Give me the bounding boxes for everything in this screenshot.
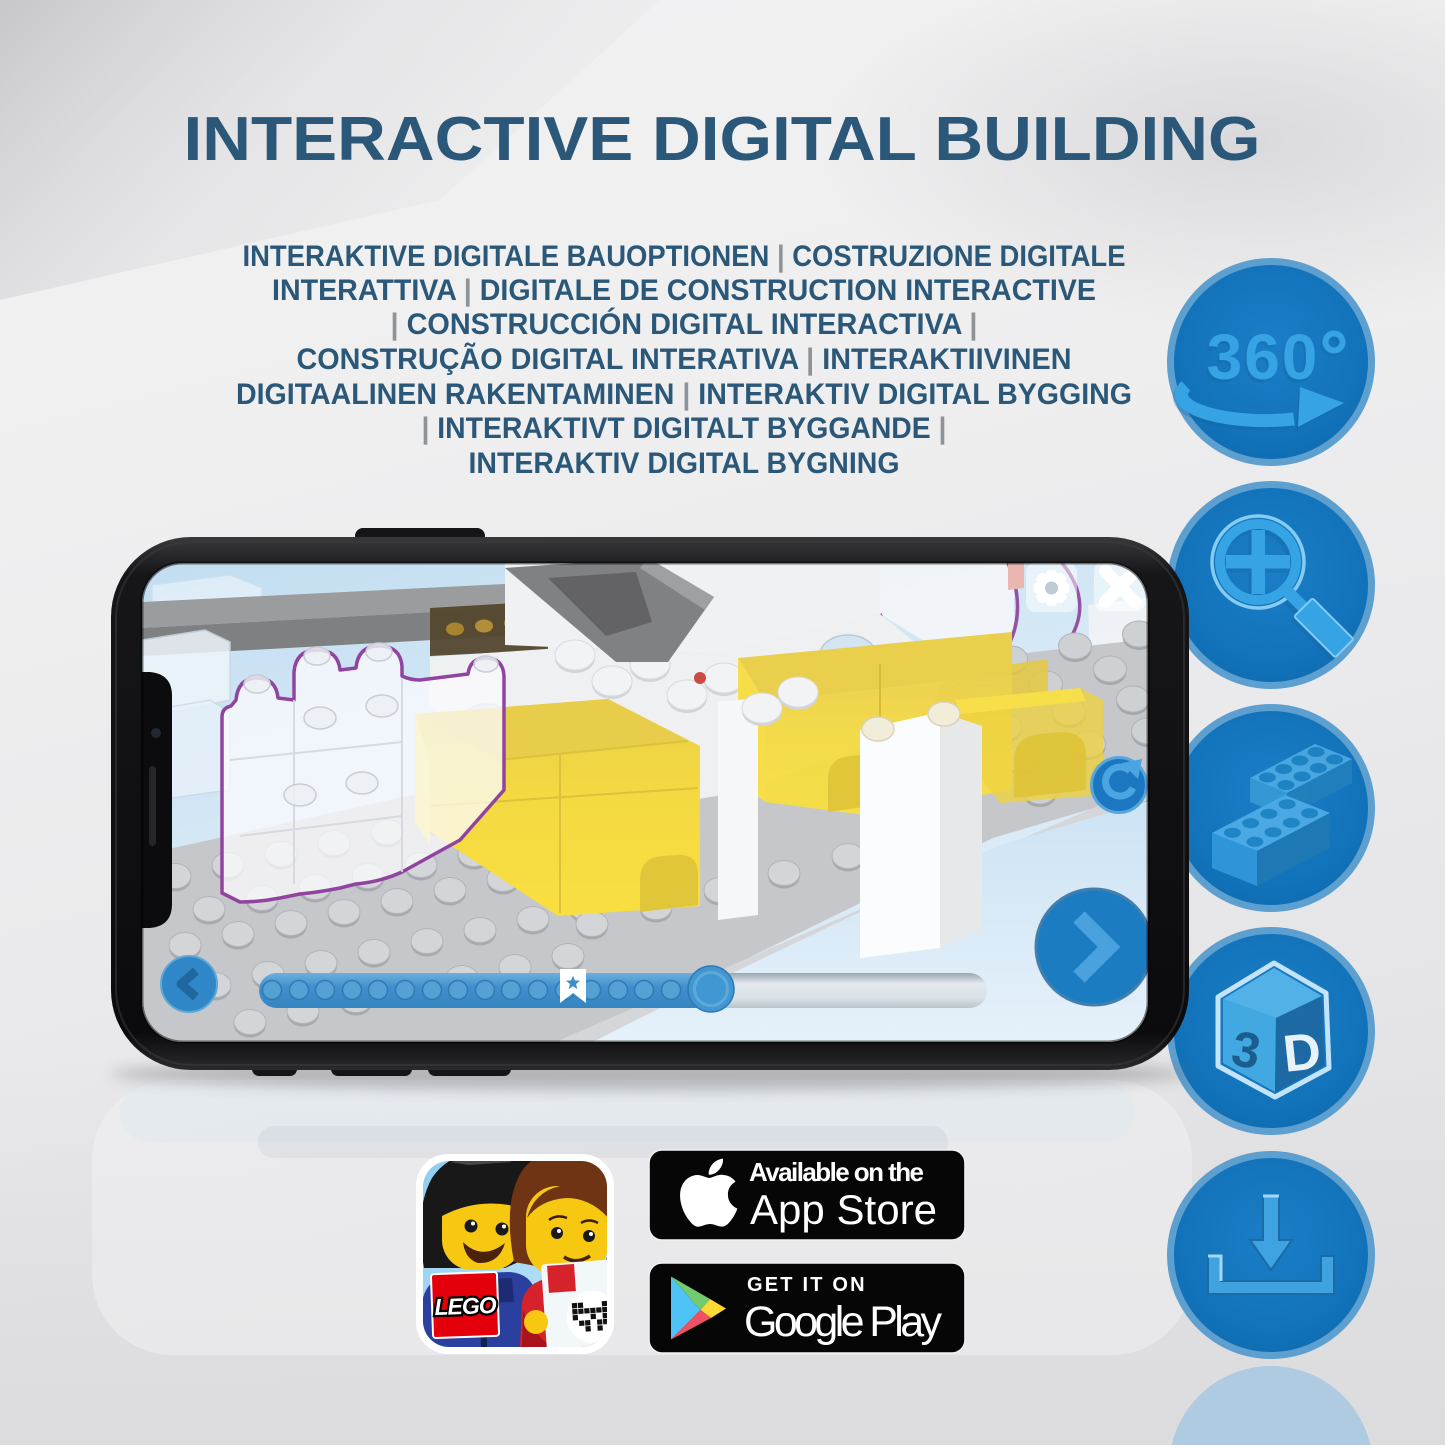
svg-text:360: 360 [1207, 321, 1320, 393]
svg-text:LEGO: LEGO [434, 1292, 497, 1320]
svg-text:| INTERAKTIVT DIGITALT BYGGAND: | INTERAKTIVT DIGITALT BYGGANDE | [422, 412, 947, 445]
svg-text:App Store: App Store [750, 1186, 937, 1233]
svg-text:INTERAKTIVE DIGITALE BAUOPTION: INTERAKTIVE DIGITALE BAUOPTIONEN | COSTR… [243, 240, 1126, 273]
svg-text:CONSTRUÇÃO DIGITAL INTERATIVA: CONSTRUÇÃO DIGITAL INTERATIVA | INTERAKT… [297, 342, 1072, 376]
svg-text:INTERATTIVA | DIGITALE DE CONS: INTERATTIVA | DIGITALE DE CONSTRUCTION I… [272, 274, 1096, 307]
svg-text:DIGITAALINEN RAKENTAMINEN | IN: DIGITAALINEN RAKENTAMINEN | INTERAKTIV D… [236, 378, 1132, 411]
svg-text:Available on the: Available on the [749, 1157, 924, 1187]
svg-text:Google Play: Google Play [744, 1298, 943, 1346]
svg-text:INTERAKTIV DIGITAL BYGNING: INTERAKTIV DIGITAL BYGNING [469, 447, 900, 480]
svg-text:INTERACTIVE DIGITAL BUILDING: INTERACTIVE DIGITAL BUILDING [184, 105, 1261, 174]
svg-text:GET IT ON: GET IT ON [747, 1274, 867, 1296]
svg-text:| CONSTRUCCIÓN DIGITAL INTERAC: | CONSTRUCCIÓN DIGITAL INTERACTIVA | [391, 307, 978, 341]
svg-text:D: D [1280, 1022, 1323, 1084]
